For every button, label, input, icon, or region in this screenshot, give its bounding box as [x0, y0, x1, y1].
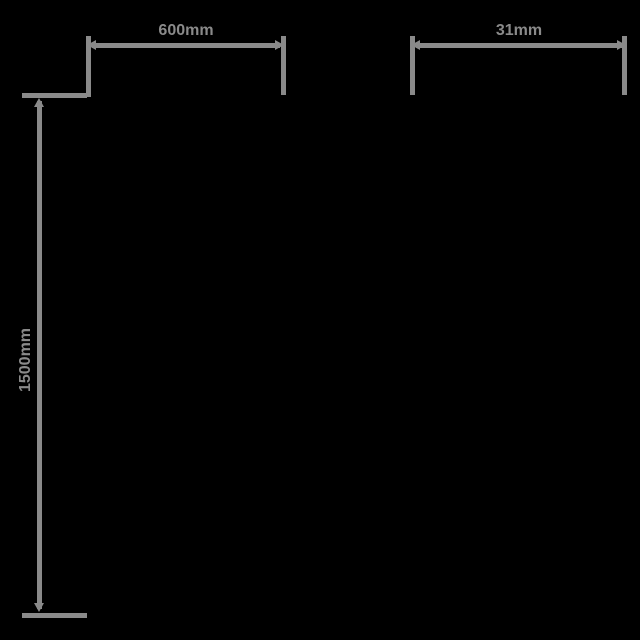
- depth-dimension-label: 31mm: [496, 23, 542, 39]
- arrow-right-icon: [275, 40, 284, 50]
- dimension-diagram: 600mm 31mm 1500mm: [0, 0, 640, 640]
- height-tick-bottom: [22, 613, 87, 618]
- width-dimension-line: [92, 43, 280, 48]
- arrow-up-icon: [34, 98, 44, 107]
- arrow-left-icon: [87, 40, 96, 50]
- width-dimension-label: 600mm: [158, 23, 213, 39]
- arrow-down-icon: [34, 603, 44, 612]
- height-tick-top: [22, 93, 87, 98]
- arrow-left-icon: [411, 40, 420, 50]
- arrow-right-icon: [617, 40, 626, 50]
- height-dimension-label: 1500mm: [18, 328, 34, 392]
- depth-dimension-line: [416, 43, 622, 48]
- height-dimension-line: [37, 101, 42, 609]
